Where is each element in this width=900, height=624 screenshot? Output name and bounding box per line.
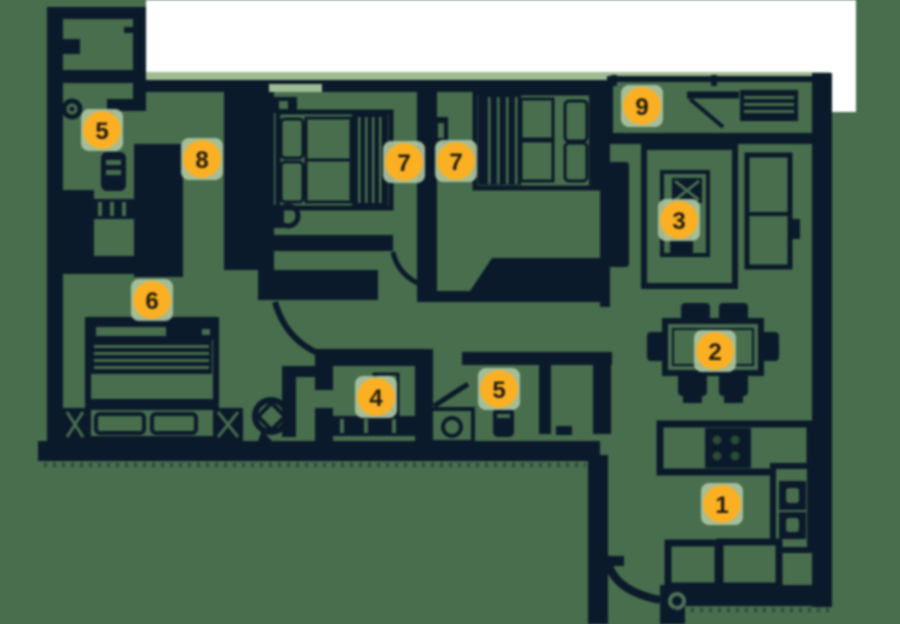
svg-text:6: 6 (145, 288, 158, 315)
svg-text:7: 7 (397, 150, 410, 177)
svg-text:2: 2 (708, 339, 721, 366)
svg-text:3: 3 (672, 208, 685, 235)
svg-text:5: 5 (492, 377, 505, 404)
svg-text:5: 5 (95, 118, 108, 145)
svg-text:7: 7 (449, 149, 462, 176)
svg-text:8: 8 (195, 147, 208, 174)
svg-text:1: 1 (715, 492, 728, 519)
svg-text:9: 9 (635, 94, 648, 121)
svg-text:4: 4 (369, 385, 383, 412)
